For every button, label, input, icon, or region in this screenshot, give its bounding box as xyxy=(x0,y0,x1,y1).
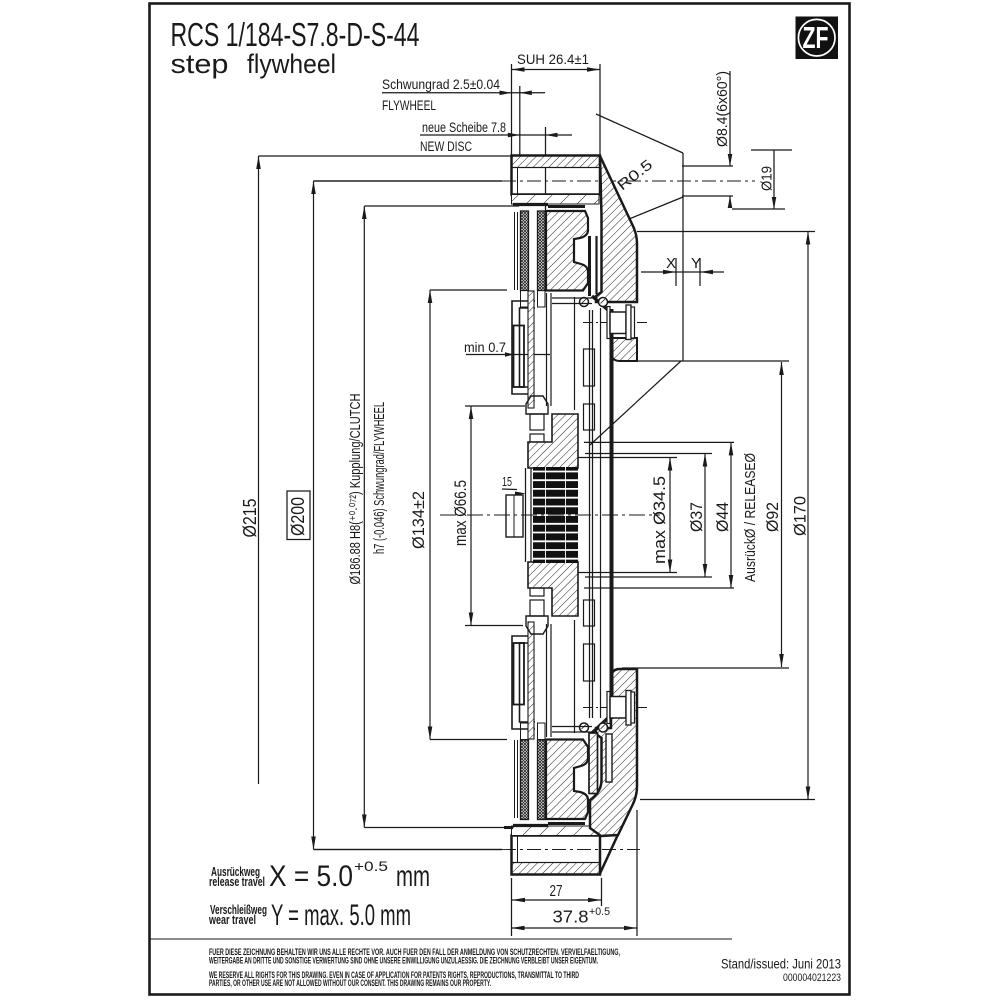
svg-text:SUH 26.4±1: SUH 26.4±1 xyxy=(517,52,589,67)
svg-text:Ø37: Ø37 xyxy=(687,502,706,532)
svg-text:Ø186.88 H8(⁺⁰·⁰⁷²) Kupplung/CL: Ø186.88 H8(⁺⁰·⁰⁷²) Kupplung/CLUTCH xyxy=(347,394,364,585)
svg-text:FLYWHEEL: FLYWHEEL xyxy=(382,98,436,113)
svg-text:min 0.7: min 0.7 xyxy=(464,340,506,355)
svg-text:release travel: release travel xyxy=(209,875,265,889)
svg-text:neue Scheibe 7.8: neue Scheibe 7.8 xyxy=(422,120,506,135)
svg-text:AusrückØ / RELEASEØ: AusrückØ / RELEASEØ xyxy=(742,453,759,582)
svg-text:X = 5.0: X = 5.0 xyxy=(269,860,353,893)
svg-text:wear travel: wear travel xyxy=(208,913,256,927)
svg-text:Ø19: Ø19 xyxy=(760,166,776,191)
svg-text:max Ø66.5: max Ø66.5 xyxy=(452,480,470,546)
svg-text:Stand/issued: Juni 2013: Stand/issued: Juni 2013 xyxy=(721,956,841,972)
svg-text:RCS 1/184-S7.8-D-S-44: RCS 1/184-S7.8-D-S-44 xyxy=(171,16,420,53)
svg-text:WEITERGABE AN DRITTE UND SONST: WEITERGABE AN DRITTE UND SONSTIGE VERWER… xyxy=(209,956,598,966)
svg-text:Ø170: Ø170 xyxy=(791,496,810,536)
svg-text:step: step xyxy=(171,49,229,79)
svg-text:+0.5: +0.5 xyxy=(354,858,388,874)
svg-text:Ø44: Ø44 xyxy=(713,502,732,532)
svg-text:+0.5: +0.5 xyxy=(589,906,610,918)
svg-text:Ø215: Ø215 xyxy=(240,499,260,538)
svg-text:Y = max. 5.0 mm: Y = max. 5.0 mm xyxy=(271,899,411,932)
svg-text:X: X xyxy=(666,255,676,272)
svg-text:27: 27 xyxy=(550,883,563,900)
svg-text:37.8: 37.8 xyxy=(553,907,589,927)
svg-text:ZF: ZF xyxy=(803,20,829,55)
svg-text:flywheel: flywheel xyxy=(247,49,336,79)
svg-text:Ø134±2: Ø134±2 xyxy=(409,491,428,549)
svg-text:Schwungrad 2.5±0.04: Schwungrad 2.5±0.04 xyxy=(382,77,500,92)
svg-text:000004021223: 000004021223 xyxy=(783,972,841,984)
svg-text:mm: mm xyxy=(396,860,430,893)
svg-text:Ø200: Ø200 xyxy=(288,497,308,536)
svg-text:max Ø34.5: max Ø34.5 xyxy=(650,476,669,564)
svg-text:NEW DISC: NEW DISC xyxy=(420,139,472,154)
svg-text:Ø8.4(6x60°): Ø8.4(6x60°) xyxy=(715,71,731,147)
svg-text:Ø92: Ø92 xyxy=(763,502,782,532)
svg-text:15: 15 xyxy=(502,474,512,489)
svg-text:h7 (-0.046) Schwungrad/FLYWHEE: h7 (-0.046) Schwungrad/FLYWHEEL xyxy=(371,402,388,554)
svg-text:PARTIES, OR OTHER USE ARE NOT: PARTIES, OR OTHER USE ARE NOT ALLOWED WI… xyxy=(209,978,491,988)
